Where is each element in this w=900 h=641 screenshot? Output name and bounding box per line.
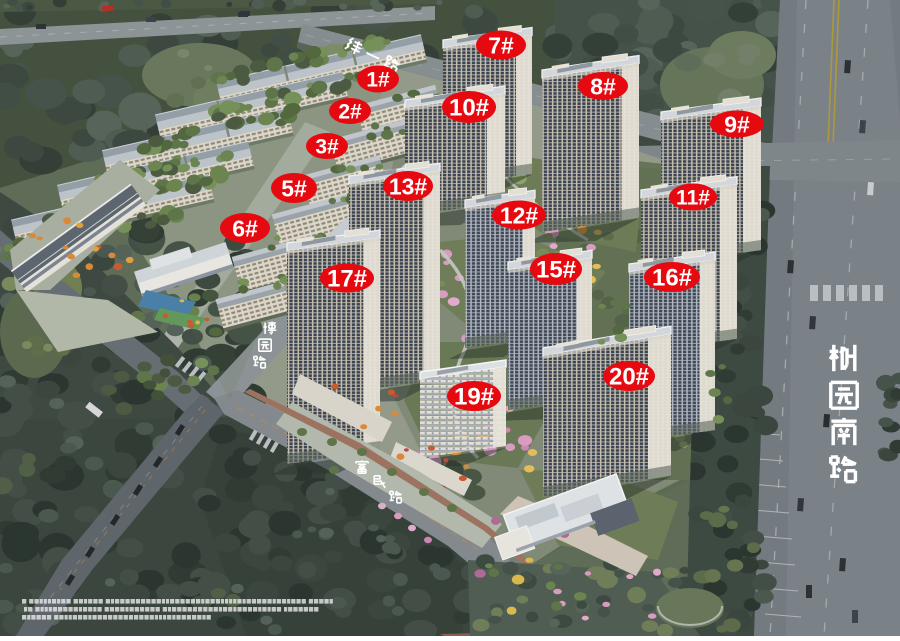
- svg-text:20#: 20#: [609, 364, 649, 391]
- svg-text:16#: 16#: [652, 265, 692, 292]
- svg-text:3#: 3#: [315, 136, 339, 159]
- svg-text:2#: 2#: [338, 101, 362, 124]
- svg-text:17#: 17#: [327, 266, 367, 293]
- svg-text:6#: 6#: [232, 215, 258, 241]
- svg-text:13#: 13#: [389, 173, 428, 199]
- svg-text:15#: 15#: [536, 257, 576, 284]
- svg-text:11#: 11#: [676, 187, 710, 210]
- svg-text:1#: 1#: [366, 69, 390, 92]
- svg-text:7#: 7#: [488, 32, 514, 58]
- svg-text:5#: 5#: [281, 175, 307, 201]
- svg-text:12#: 12#: [500, 202, 539, 228]
- svg-text:10#: 10#: [449, 95, 489, 122]
- svg-text:9#: 9#: [724, 111, 750, 137]
- svg-text:19#: 19#: [454, 384, 494, 411]
- svg-text:8#: 8#: [590, 73, 616, 99]
